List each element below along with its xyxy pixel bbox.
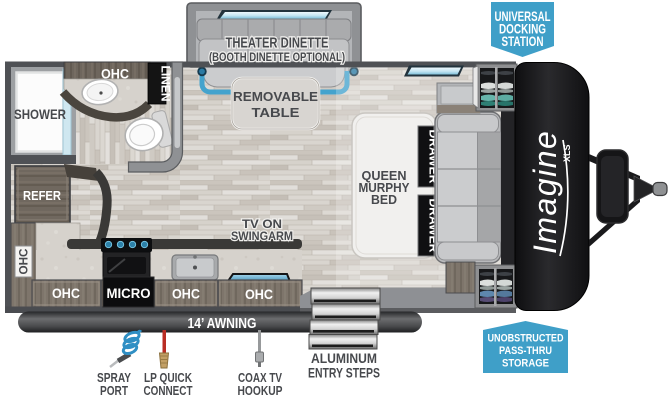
svg-text:PASS-THRU: PASS-THRU	[499, 345, 552, 357]
svg-text:MICRO: MICRO	[107, 285, 151, 301]
svg-text:OHC: OHC	[52, 286, 80, 301]
svg-text:SPRAY: SPRAY	[97, 371, 132, 385]
svg-text:OHC: OHC	[245, 287, 273, 302]
svg-text:ENTRY STEPS: ENTRY STEPS	[308, 365, 380, 381]
svg-text:BED: BED	[371, 192, 397, 207]
svg-text:REFER: REFER	[23, 188, 62, 203]
svg-text:PORT: PORT	[100, 384, 128, 398]
svg-text:UNOBSTRUCTED: UNOBSTRUCTED	[488, 333, 564, 345]
svg-text:REMOVABLE: REMOVABLE	[233, 89, 318, 104]
svg-text:TABLE: TABLE	[252, 105, 300, 120]
svg-text:OHC: OHC	[17, 248, 31, 274]
svg-text:Imagine: Imagine	[527, 130, 563, 254]
svg-text:(BOOTH DINETTE OPTIONAL): (BOOTH DINETTE OPTIONAL)	[209, 50, 345, 64]
svg-text:STORAGE: STORAGE	[502, 358, 549, 370]
svg-text:HOOKUP: HOOKUP	[238, 384, 283, 398]
svg-text:CONNECT: CONNECT	[144, 384, 193, 398]
svg-text:SHOWER: SHOWER	[14, 106, 66, 122]
svg-text:OHC: OHC	[172, 287, 200, 302]
svg-text:STATION: STATION	[502, 33, 544, 49]
svg-text:SWINGARM: SWINGARM	[231, 229, 293, 243]
svg-text:LP QUICK: LP QUICK	[144, 371, 192, 385]
svg-text:COAX TV: COAX TV	[238, 371, 283, 385]
svg-text:14’ AWNING: 14’ AWNING	[188, 316, 257, 332]
svg-text:THEATER DINETTE: THEATER DINETTE	[226, 35, 329, 52]
svg-text:XLS: XLS	[562, 144, 572, 162]
svg-text:LINEN: LINEN	[159, 66, 171, 102]
